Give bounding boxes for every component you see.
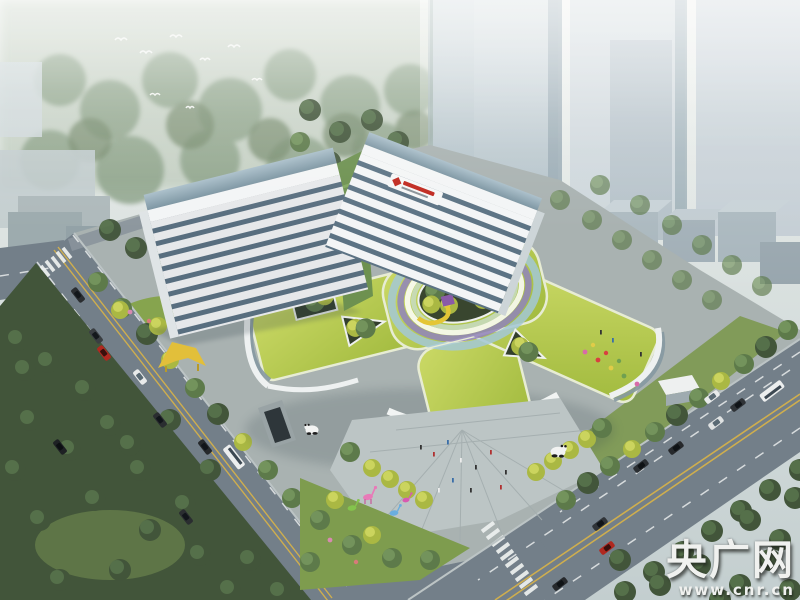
aerial-rendering: 央广网 www.cnr.cn bbox=[0, 0, 800, 600]
scene-canvas bbox=[0, 0, 800, 600]
atmospheric-haze bbox=[0, 0, 800, 230]
